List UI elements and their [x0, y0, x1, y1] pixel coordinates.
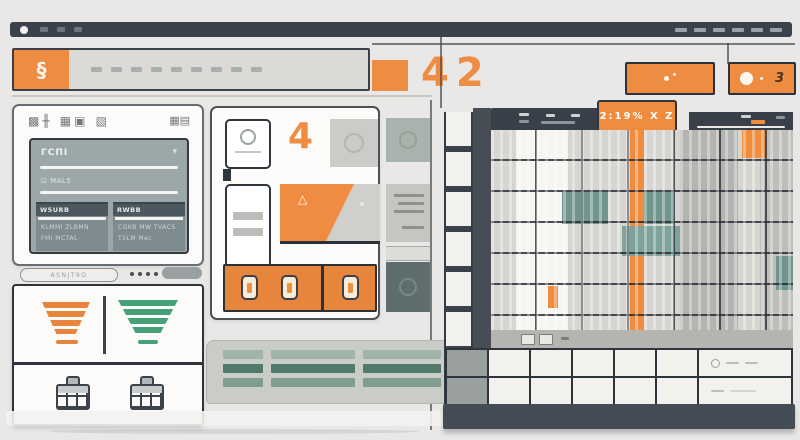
chevron-down-icon[interactable]: ▾	[172, 147, 177, 157]
field1-input[interactable]	[40, 166, 178, 169]
table-cell	[571, 350, 613, 376]
cell-dash	[711, 390, 724, 393]
nav-menu-item[interactable]	[231, 67, 242, 72]
header-mark	[519, 113, 529, 116]
cell-dash	[730, 390, 756, 393]
dashboard-mockup: § 42 3 ▩╫ ▦▣ ▧ ▦▤ ΓCΠI ▾ ⊡ MAL5 W5URB KL…	[0, 0, 800, 440]
bottom-light-strip	[6, 411, 446, 426]
titlebar-dash-icon	[732, 28, 744, 32]
header-mark	[776, 116, 785, 119]
cell-dash	[745, 362, 758, 365]
header-count: 42	[421, 50, 491, 96]
section-divider	[14, 362, 202, 365]
window-control-icon[interactable]	[57, 27, 65, 32]
louver-stripe	[223, 364, 263, 373]
wireframe-line-h	[372, 43, 795, 45]
text-line	[394, 210, 424, 213]
logo-icon: §	[37, 58, 47, 82]
nav-menu	[91, 67, 262, 72]
grid-header-right	[689, 112, 793, 130]
header-mark-orange	[751, 120, 765, 124]
louver-group	[363, 350, 441, 394]
dot-icon	[130, 272, 134, 276]
table-cell	[613, 350, 655, 376]
nav-bar: §	[12, 48, 370, 91]
table-cell-gray	[447, 350, 487, 376]
header-mark	[571, 114, 580, 117]
louver-stripe	[363, 378, 441, 387]
grid-subheader-band	[491, 330, 793, 348]
table-cell	[655, 350, 697, 376]
divider	[103, 296, 106, 354]
header-underline	[697, 126, 785, 129]
louver-stripe	[363, 364, 441, 373]
louver-stripe	[271, 378, 355, 387]
nav-menu-item[interactable]	[211, 67, 222, 72]
window-controls	[40, 27, 82, 32]
text-bar	[233, 228, 263, 236]
logo-button[interactable]: §	[14, 50, 69, 89]
nav-menu-item[interactable]	[131, 67, 142, 72]
titlebar-dash-icon	[770, 28, 782, 32]
info-box-header: W5URB	[36, 204, 108, 216]
avatar-circle-icon	[240, 129, 256, 145]
band-glyph	[521, 334, 535, 345]
louver-stripe	[223, 378, 263, 387]
funnel-base-green	[138, 340, 158, 344]
divider-line	[12, 95, 432, 97]
header-accent-block	[372, 60, 408, 91]
stats-card	[12, 284, 204, 426]
info-box-2: RWBB CGKB MW TVACS T5LM Mec	[113, 202, 185, 251]
table-cells	[487, 378, 697, 404]
table-cell-wide	[697, 378, 791, 404]
nav-menu-item[interactable]	[191, 67, 202, 72]
louver-stripe	[223, 350, 263, 359]
button-mark	[247, 283, 252, 293]
table-row	[447, 350, 791, 376]
field1-label: ΓCΠI	[41, 148, 68, 158]
nav-menu-item[interactable]	[151, 67, 162, 72]
nav-menu-item[interactable]	[251, 67, 262, 72]
text-line	[394, 194, 424, 197]
toolbar-button[interactable]	[281, 275, 298, 300]
table-cell	[487, 350, 529, 376]
grid-table-icon[interactable]	[130, 376, 164, 410]
strip-tile-dark	[386, 262, 430, 312]
circle-glyph-icon	[344, 133, 364, 153]
info-box-line	[38, 217, 106, 220]
notification-count: 3	[775, 71, 784, 86]
notification-button[interactable]: 3	[728, 62, 796, 95]
cell-dash	[726, 362, 739, 365]
titlebar-dash-icon	[675, 28, 687, 32]
filter-chip[interactable]: ASNJT9O	[20, 268, 118, 282]
button-mark	[348, 283, 353, 293]
funnel-chart-orange	[42, 302, 90, 334]
facade-grid-lines	[491, 130, 793, 330]
header-mark	[541, 121, 575, 124]
header-mark	[519, 120, 529, 123]
info-box-header: RWBB	[113, 204, 185, 216]
ground-shadow	[50, 429, 420, 434]
info-box-1: W5URB KLMMI ZLBMN FMI MCTAL	[36, 202, 108, 251]
louver-group	[271, 350, 355, 394]
table-cell-gray	[447, 378, 487, 404]
grid-body	[130, 384, 164, 410]
louver-group	[223, 350, 263, 394]
text-bar	[233, 212, 263, 220]
funnel-base-orange	[56, 340, 78, 344]
strip-tile-top	[386, 118, 430, 162]
band-glyph	[561, 337, 569, 340]
header-mark	[741, 115, 751, 118]
nav-menu-item[interactable]	[171, 67, 182, 72]
field2-label: ⊡ MAL5	[41, 177, 71, 185]
band-glyph	[539, 334, 553, 345]
table-cells	[487, 350, 697, 376]
table-cell	[487, 378, 529, 404]
sparkle-dot-icon	[673, 73, 676, 76]
field2-input[interactable]	[40, 191, 178, 194]
gray-pill-button[interactable]	[162, 267, 202, 279]
grid-table-icon[interactable]	[56, 376, 90, 410]
grid-tab	[140, 376, 154, 384]
louver-stripe	[271, 364, 355, 373]
window-control-icon[interactable]	[74, 27, 82, 32]
grid-footer-bar	[443, 404, 795, 429]
grid-table	[445, 348, 793, 406]
middle-panel: 4 △	[210, 106, 380, 320]
info-box-text: T5LM Mec	[118, 235, 185, 242]
panel-corner-icon[interactable]: ▦▤	[169, 114, 190, 127]
strip-text-panel	[386, 184, 430, 242]
grid-body	[56, 384, 90, 410]
strip-light-row	[386, 246, 430, 261]
status-circle-icon	[740, 72, 753, 85]
toolbar-button[interactable]	[342, 275, 359, 300]
button-mark	[287, 283, 292, 293]
wireframe-line-v2	[727, 43, 729, 64]
table-cell	[529, 378, 571, 404]
dots-indicator	[130, 272, 158, 276]
window-titlebar	[10, 22, 792, 37]
toolbar-button[interactable]	[241, 275, 258, 300]
grid-active-tab[interactable]: 2:19% X Z	[597, 100, 677, 130]
louver-stripe	[363, 350, 441, 359]
text-line	[398, 202, 424, 205]
window-control-icon[interactable]	[40, 27, 48, 32]
nav-menu-item[interactable]	[111, 67, 122, 72]
dot-icon	[138, 272, 142, 276]
dot-icon	[154, 272, 158, 276]
dot-icon	[760, 77, 763, 80]
info-box-line	[115, 217, 183, 220]
nav-menu-item[interactable]	[91, 67, 102, 72]
titlebar-right-dashes	[675, 28, 782, 32]
document-card[interactable]	[225, 184, 271, 268]
info-box-text: KLMMI ZLBMN	[41, 224, 108, 231]
louver-panel	[206, 340, 446, 404]
titlebar-dash-icon	[713, 28, 725, 32]
panel-title: ▩╫ ▦▣ ▧	[28, 114, 110, 128]
table-cell-wide	[697, 350, 791, 376]
placeholder-tile[interactable]	[330, 119, 378, 167]
bubble-tail	[223, 169, 231, 181]
orange-toolbar	[223, 264, 377, 312]
form-panel: ΓCΠI ▾ ⊡ MAL5 W5URB KLMMI ZLBMN FMI MCTA…	[29, 138, 189, 254]
cell-circle-icon	[711, 359, 720, 368]
table-cell	[571, 378, 613, 404]
table-row	[447, 376, 791, 404]
table-cell	[613, 378, 655, 404]
left-panel: ▩╫ ▦▣ ▧ ▦▤ ΓCΠI ▾ ⊡ MAL5 W5URB KLMMI ZLB…	[12, 104, 204, 266]
toolbar-divider	[321, 266, 324, 310]
dot-icon	[146, 272, 150, 276]
header-action-button[interactable]	[625, 62, 715, 95]
table-cell	[655, 378, 697, 404]
grid-header-left	[491, 108, 597, 130]
text-line	[235, 151, 261, 153]
table-cell	[529, 350, 571, 376]
dot-icon	[360, 202, 364, 206]
text-line	[402, 226, 424, 229]
titlebar-dash-icon	[751, 28, 763, 32]
highlight-card[interactable]: △	[280, 184, 380, 244]
circle-glyph-icon	[399, 278, 417, 296]
wireframe-line-v	[440, 36, 442, 108]
grid-tab	[66, 376, 80, 384]
titlebar-dash-icon	[694, 28, 706, 32]
building-facade-grid	[491, 130, 793, 330]
orange-wedge	[280, 184, 380, 241]
header-mark	[546, 114, 555, 117]
info-box-text: FMI MCTAL	[41, 235, 108, 242]
circle-glyph-icon	[399, 131, 417, 149]
triangle-icon: △	[298, 192, 307, 206]
window-menu-dot-icon[interactable]	[20, 26, 28, 34]
funnel-chart-green	[118, 300, 178, 334]
sparkle-dot-icon	[664, 76, 669, 81]
louver-stripe	[271, 350, 355, 359]
count-badge: 4	[288, 116, 313, 157]
chat-bubble-card[interactable]	[225, 119, 271, 169]
info-box-text: CGKB MW TVACS	[118, 224, 185, 231]
